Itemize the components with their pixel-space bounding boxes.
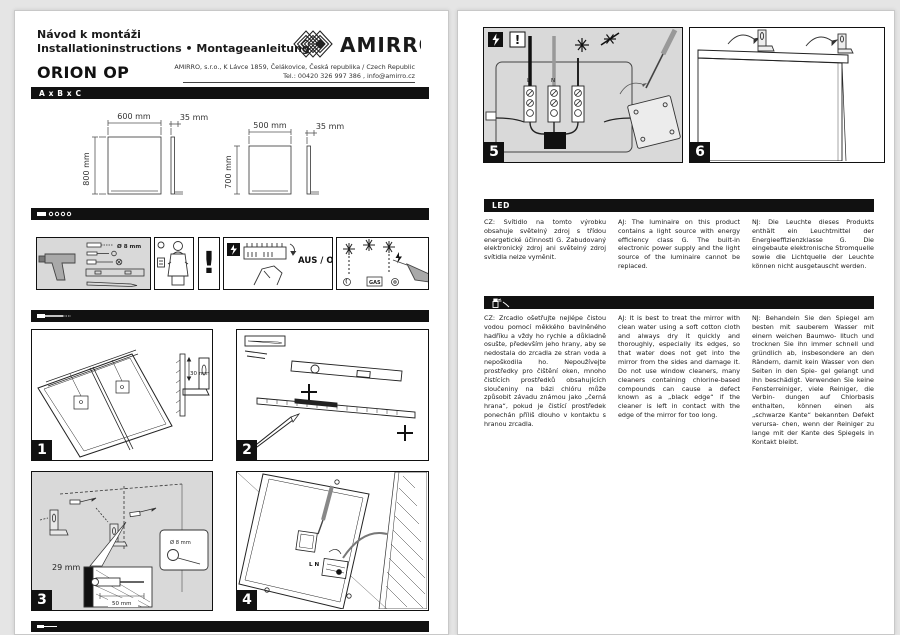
led-bar-label: LED	[484, 201, 510, 210]
apron-icon	[155, 238, 193, 289]
step3-depth-label: 50 mm	[112, 601, 131, 607]
step5-illustration: !	[484, 28, 681, 161]
mirror1-width-label: 600 mm	[117, 112, 151, 121]
step3-number: 3	[32, 590, 52, 610]
step1-offset-label: 30 mm	[190, 371, 209, 377]
breaker-icon: AUS / OFF	[224, 238, 332, 289]
care-text-cz: CZ: Zrcadlo ošetřujte nejlépe čistou vod…	[484, 314, 606, 429]
step4-terminal-label: L N	[309, 562, 320, 568]
drill-hole-label: Ø 8 mm	[117, 243, 141, 250]
tools-pictogram: Ø 8 mm	[36, 237, 151, 290]
header-divider	[183, 82, 415, 83]
amirro-logo: AMIRRO	[293, 26, 421, 64]
mirror-dimension-diagrams: 600 mm 35 mm 800 mm 500 mm 35 mm 700 mm	[31, 109, 429, 205]
mirror2-width-label: 500 mm	[253, 121, 287, 130]
step3-offset-label: 29 mm	[52, 563, 81, 572]
mirror1-height-label: 800 mm	[82, 152, 91, 186]
warning-pictogram: !	[198, 237, 220, 290]
power-off-pictogram: AUS / OFF	[223, 237, 333, 290]
dimensions-bar-label: A x B x C	[31, 89, 82, 98]
company-contact: Tel.: 00420 326 997 386 , info@amirro.cz	[283, 72, 415, 80]
step2-illustration	[237, 330, 427, 459]
page-left: Návod k montáži Installationinstructions…	[14, 10, 449, 635]
footer-bar	[31, 621, 429, 632]
step1-number: 1	[32, 440, 52, 460]
step3-panel: Ø 8 mm 50 mm 29 mm 3	[31, 471, 213, 611]
dimensions-bar: A x B x C	[31, 87, 429, 99]
step4-illustration: L N	[237, 472, 427, 609]
mounting-bar	[31, 310, 429, 322]
step6-number: 6	[690, 142, 710, 162]
company-address: AMIRRO, s.r.o., K Lávce 1859, Čelákovice…	[174, 63, 415, 71]
step1-panel: 30 mm 1	[31, 329, 213, 461]
mirror2-height-label: 700 mm	[224, 155, 233, 189]
led-text-en: AJ: The luminaire on this product contai…	[618, 218, 740, 271]
fixings-bar	[31, 208, 429, 220]
gas-label: GAS	[369, 280, 381, 286]
manual-title-cz: Návod k montáži	[37, 28, 141, 41]
step5-number: 5	[484, 142, 504, 162]
step1-illustration: 30 mm	[32, 330, 211, 459]
cleaning-icon	[490, 298, 512, 308]
led-bar: LED	[484, 199, 874, 212]
step6-illustration	[690, 28, 883, 161]
step6-panel: 6	[689, 27, 885, 163]
step2-panel: 2	[236, 329, 429, 461]
apron-pictogram	[154, 237, 194, 290]
footer-icon	[37, 623, 67, 630]
step5-panel: !	[483, 27, 683, 163]
led-text-cz: CZ: Svítidlo na tomto výrobku obsahuje s…	[484, 218, 606, 262]
step2-number: 2	[237, 440, 257, 460]
hidden-wires-icon: GAS	[337, 238, 428, 289]
step4-panel: L N 4	[236, 471, 429, 611]
led-text-de: NJ: Die Leuchte dieses Produkts enthält …	[752, 218, 874, 271]
step5-n-label: N	[551, 78, 555, 84]
step3-illustration: Ø 8 mm 50 mm 29 mm	[32, 472, 211, 609]
step4-number: 4	[237, 590, 257, 610]
diamonds-icon	[294, 31, 332, 57]
hidden-lines-pictogram: GAS	[336, 237, 429, 290]
power-off-label: AUS / OFF	[298, 256, 332, 266]
mounting-icon	[37, 312, 77, 320]
manual-title-intl: Installationinstructions • Montageanleit…	[37, 42, 310, 55]
exclamation-icon: !	[202, 249, 216, 279]
fixings-icon	[37, 210, 81, 218]
brand-text: AMIRRO	[340, 33, 421, 57]
step3-hole-label: Ø 8 mm	[170, 539, 191, 546]
page-right: !	[457, 10, 895, 635]
product-name: ORION OP	[37, 63, 129, 82]
mirror1-depth-label: 35 mm	[180, 113, 209, 122]
care-text-en: AJ: It is best to treat the mirror with …	[618, 314, 740, 420]
care-bar	[484, 296, 874, 309]
svg-text:!: !	[515, 33, 520, 47]
mirror2-depth-label: 35 mm	[316, 122, 345, 131]
care-text-de: NJ: Behandeln Sie den Spiegel am besten …	[752, 314, 874, 446]
tools-icon: Ø 8 mm	[37, 238, 150, 289]
